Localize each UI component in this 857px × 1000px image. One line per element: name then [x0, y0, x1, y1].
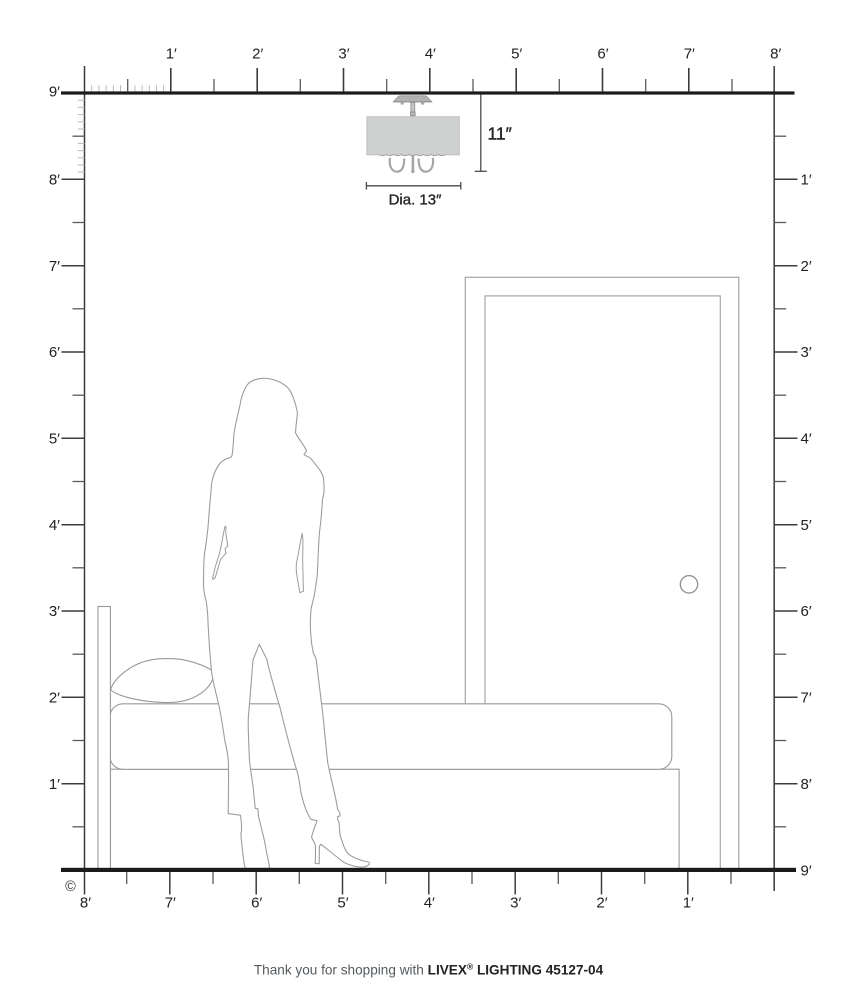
svg-text:5′: 5′: [511, 46, 522, 63]
svg-text:6′: 6′: [801, 603, 812, 620]
svg-text:Dia. 13″: Dia. 13″: [389, 192, 443, 209]
svg-text:2′: 2′: [801, 258, 812, 275]
svg-text:5′: 5′: [337, 895, 348, 912]
svg-text:8′: 8′: [49, 172, 60, 189]
svg-text:5′: 5′: [801, 517, 812, 534]
svg-text:1′: 1′: [801, 172, 812, 189]
svg-text:2′: 2′: [252, 46, 263, 63]
svg-text:4′: 4′: [801, 431, 812, 448]
svg-text:7′: 7′: [801, 690, 812, 707]
svg-text:3′: 3′: [338, 46, 349, 63]
svg-text:4′: 4′: [49, 517, 60, 534]
svg-text:11″: 11″: [488, 124, 512, 144]
svg-text:6′: 6′: [251, 895, 262, 912]
svg-text:2′: 2′: [49, 690, 60, 707]
svg-text:3′: 3′: [510, 895, 521, 912]
svg-text:5′: 5′: [49, 431, 60, 448]
svg-text:Thank you for shopping with LI: Thank you for shopping with LIVEX® LIGHT…: [254, 962, 604, 978]
svg-text:9′: 9′: [801, 862, 812, 879]
svg-text:6′: 6′: [49, 344, 60, 361]
svg-text:2′: 2′: [596, 895, 607, 912]
svg-text:4′: 4′: [425, 46, 436, 63]
svg-text:8′: 8′: [801, 776, 812, 793]
svg-text:7′: 7′: [49, 258, 60, 275]
svg-text:3′: 3′: [49, 603, 60, 620]
svg-text:1′: 1′: [166, 46, 177, 63]
svg-text:1′: 1′: [49, 776, 60, 793]
svg-text:6′: 6′: [597, 46, 608, 63]
svg-text:7′: 7′: [165, 895, 176, 912]
svg-text:3′: 3′: [801, 344, 812, 361]
svg-text:1′: 1′: [683, 895, 694, 912]
svg-text:9′: 9′: [49, 84, 60, 101]
svg-text:7′: 7′: [684, 46, 695, 63]
svg-text:8′: 8′: [770, 46, 781, 63]
svg-text:4′: 4′: [424, 895, 435, 912]
svg-text:©: ©: [65, 879, 76, 895]
svg-text:8′: 8′: [80, 895, 91, 912]
